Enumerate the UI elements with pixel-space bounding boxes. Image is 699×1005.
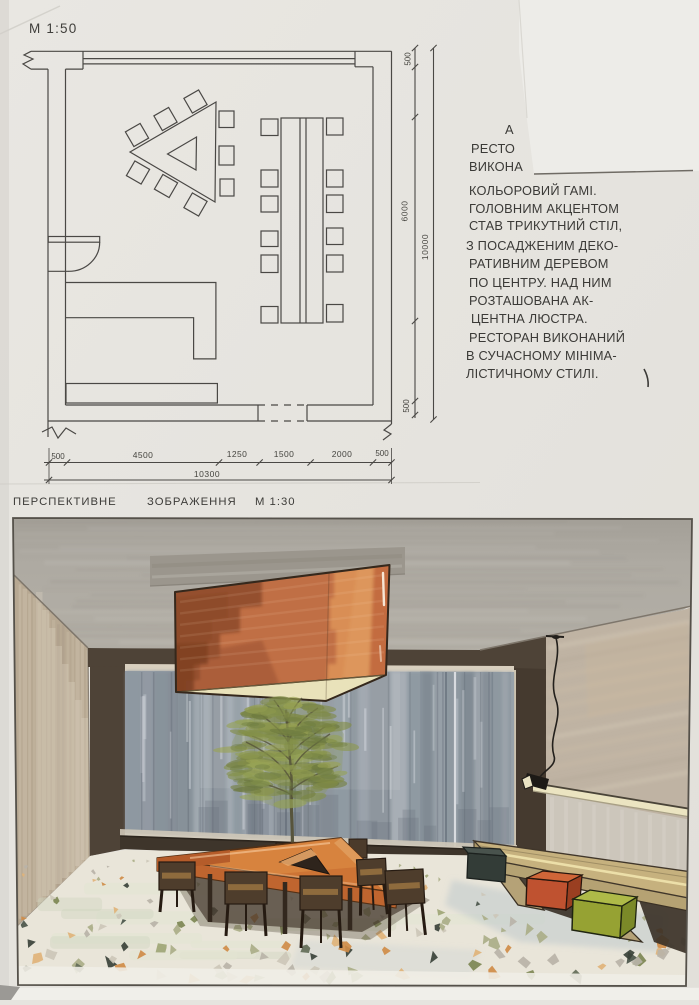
svg-text:РАТИВНИМ ДЕРЕВОМ: РАТИВНИМ ДЕРЕВОМ [469, 256, 609, 271]
svg-text:В СУЧАСНОМУ МІНІМА-: В СУЧАСНОМУ МІНІМА- [466, 348, 617, 363]
svg-text:З ПОСАДЖЕНИМ ДЕКО-: З ПОСАДЖЕНИМ ДЕКО- [466, 238, 618, 253]
svg-text:ПЕРСПЕКТИВНЕ: ПЕРСПЕКТИВНЕ [13, 496, 117, 508]
svg-text:ВИКОНА: ВИКОНА [469, 159, 523, 174]
svg-text:6000: 6000 [400, 201, 410, 222]
svg-text:1250: 1250 [227, 449, 248, 459]
svg-text:М 1:30: М 1:30 [255, 496, 296, 508]
svg-text:А: А [505, 122, 514, 137]
svg-text:1500: 1500 [274, 449, 295, 459]
svg-text:500: 500 [404, 52, 413, 66]
svg-text:500: 500 [51, 452, 65, 461]
svg-text:ЗОБРАЖЕННЯ: ЗОБРАЖЕННЯ [147, 496, 237, 508]
svg-text:10300: 10300 [194, 469, 220, 479]
svg-text:РЕСТО: РЕСТО [471, 141, 515, 156]
svg-text:СТАВ ТРИКУТНИЙ СТІЛ,: СТАВ ТРИКУТНИЙ СТІЛ, [469, 218, 622, 233]
svg-text:ГОЛОВНИМ АКЦЕНТОМ: ГОЛОВНИМ АКЦЕНТОМ [469, 201, 619, 216]
svg-text:М 1:50: М 1:50 [29, 21, 77, 36]
svg-text:РОЗТАШОВАНА АК-: РОЗТАШОВАНА АК- [469, 293, 594, 308]
svg-text:500: 500 [375, 449, 389, 458]
svg-text:ЦЕНТНА ЛЮСТРА.: ЦЕНТНА ЛЮСТРА. [471, 311, 588, 326]
svg-text:РЕСТОРАН ВИКОНАНИЙ: РЕСТОРАН ВИКОНАНИЙ [469, 330, 625, 345]
svg-text:2000: 2000 [332, 449, 353, 459]
svg-text:ЛІСТИЧНОМУ СТИЛІ.: ЛІСТИЧНОМУ СТИЛІ. [466, 366, 599, 381]
svg-text:500: 500 [402, 399, 411, 413]
svg-text:4500: 4500 [133, 450, 154, 460]
svg-text:КОЛЬОРОВИЙ ГАМІ.: КОЛЬОРОВИЙ ГАМІ. [469, 183, 597, 198]
svg-text:ПО ЦЕНТРУ. НАД НИМ: ПО ЦЕНТРУ. НАД НИМ [469, 275, 612, 290]
svg-text:10000: 10000 [420, 234, 430, 260]
